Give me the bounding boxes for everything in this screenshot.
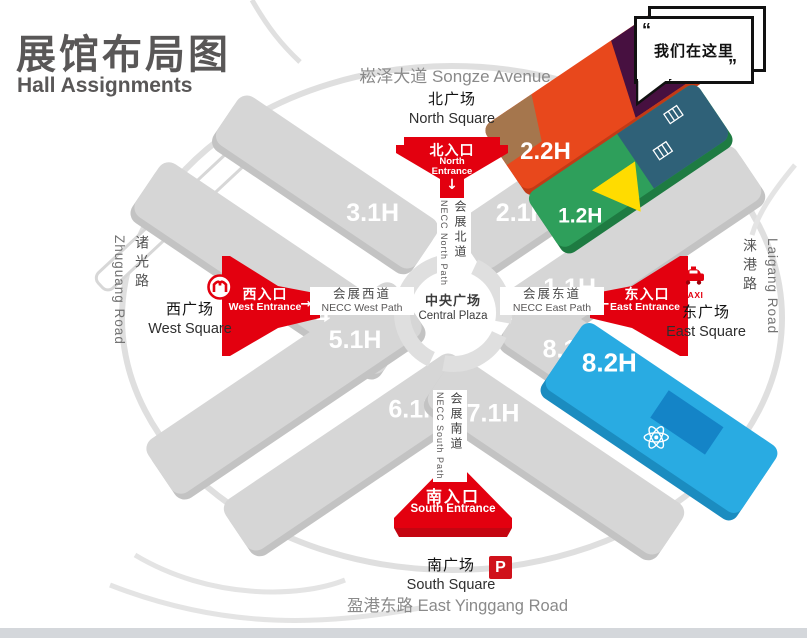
east-square-label: 东广场 East Square xyxy=(648,303,764,341)
west-square-label: 西广场 West Square xyxy=(126,300,254,338)
atom-icon xyxy=(643,423,671,451)
path-name-en: NECC West Path xyxy=(310,302,414,315)
avenue-name-en: Songze Avenue xyxy=(432,67,551,86)
down-arrow-icon: ↓ xyxy=(396,177,508,193)
open-quote: “ xyxy=(642,20,651,41)
avenue-name-zh: 崧泽大道 xyxy=(359,67,432,86)
hall-label: 3.1H xyxy=(347,199,400,228)
central-plaza-label: 中央广场 Central Plaza xyxy=(402,293,504,324)
square-name-en: East Square xyxy=(648,323,764,342)
square-name-en: South Square xyxy=(405,576,497,595)
east-yinggang-road-label: 盈港东路 East Yinggang Road xyxy=(335,592,580,616)
songze-avenue-label: 崧泽大道 Songze Avenue xyxy=(330,62,580,87)
page-title: 展馆布局图 xyxy=(16,22,231,80)
path-name-zh: 会展北道 xyxy=(452,200,469,286)
square-name-en: North Square xyxy=(392,110,512,129)
square-name-zh: 东广场 xyxy=(648,303,764,323)
path-name-en: NECC South Path xyxy=(435,392,445,480)
square-name-zh: 北广场 xyxy=(392,90,512,110)
path-name-zh: 会展东道 xyxy=(500,287,604,302)
road-name-en: Zhuguang Road xyxy=(112,235,127,345)
necc-west-path-label: 会展西道 NECC West Path xyxy=(310,287,414,315)
hall-label: 7.1H xyxy=(467,399,520,428)
avenue-name-zh: 盈港东路 xyxy=(347,597,418,615)
venue-map: 展馆布局图 Hall Assignments 3.1H 4.1H 2.1H 1.… xyxy=(0,0,807,638)
building-icon xyxy=(663,105,684,125)
north-square-label: 北广场 North Square xyxy=(392,90,512,128)
parking-icon: P xyxy=(489,556,512,579)
page-subtitle: Hall Assignments xyxy=(17,74,192,98)
north-entrance: 北入口 North Entrance ↓ xyxy=(396,137,508,199)
bottom-bar xyxy=(0,628,807,638)
square-name-zh: 西广场 xyxy=(126,300,254,320)
taxi-icon xyxy=(680,266,707,285)
taxi-stand: TAXI xyxy=(677,266,709,300)
plaza-name-zh: 中央广场 xyxy=(402,293,504,309)
necc-south-path-label: NECC South Path 会展南道 xyxy=(433,390,467,482)
path-name-zh: 会展西道 xyxy=(310,287,414,302)
taxi-label: TAXI xyxy=(677,290,709,300)
path-name-zh: 会展南道 xyxy=(448,392,465,480)
we-are-here-text: 我们在这里 xyxy=(654,40,734,61)
plaza-name-en: Central Plaza xyxy=(402,309,504,323)
necc-east-path-label: 会展东道 NECC East Path xyxy=(500,287,604,315)
south-square-label: 南广场 South Square xyxy=(405,556,497,594)
close-quote: ” xyxy=(728,56,737,77)
square-name-en: West Square xyxy=(126,320,254,339)
hall-label: 5.1H xyxy=(329,326,382,355)
road-name-en: Laigang Road xyxy=(765,238,780,334)
hall-label: 2.2H xyxy=(520,138,571,166)
avenue-name-en: East Yinggang Road xyxy=(418,597,568,615)
hall-label: 8.2H xyxy=(582,347,637,378)
entrance-name-en: South Entrance xyxy=(388,503,518,515)
metro-icon xyxy=(206,273,234,301)
hall-label: 1.2H xyxy=(558,205,602,229)
speech-bubble-tail xyxy=(636,79,674,107)
path-name-en: NECC East Path xyxy=(500,302,604,315)
path-name-en: NECC North Path xyxy=(439,200,449,286)
necc-north-path-label: NECC North Path 会展北道 xyxy=(437,198,471,288)
building-icon xyxy=(652,140,673,160)
entrance-name-en2: Entrance xyxy=(396,166,508,177)
square-name-zh: 南广场 xyxy=(405,556,497,576)
